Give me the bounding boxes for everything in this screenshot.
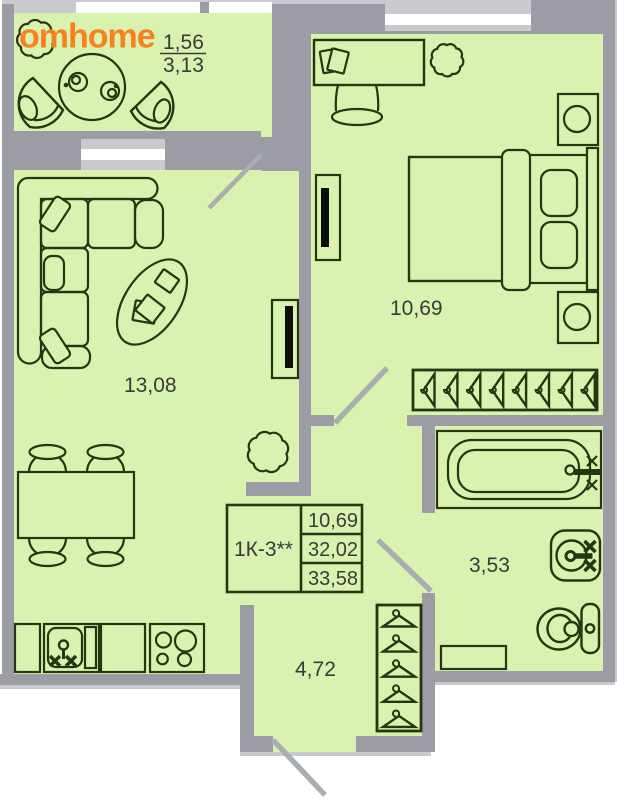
- svg-text:13,08: 13,08: [124, 374, 177, 397]
- svg-text:1К-3**: 1К-3**: [234, 538, 293, 561]
- svg-text:33,58: 33,58: [308, 568, 358, 590]
- svg-text:omhome: omhome: [19, 18, 155, 56]
- svg-text:1,56: 1,56: [163, 31, 204, 54]
- svg-text:32,02: 32,02: [308, 539, 358, 561]
- svg-text:4,72: 4,72: [295, 658, 336, 681]
- svg-text:10,69: 10,69: [390, 297, 443, 320]
- svg-text:10,69: 10,69: [308, 510, 358, 532]
- svg-text:3,13: 3,13: [163, 54, 204, 77]
- svg-text:3,53: 3,53: [469, 554, 510, 577]
